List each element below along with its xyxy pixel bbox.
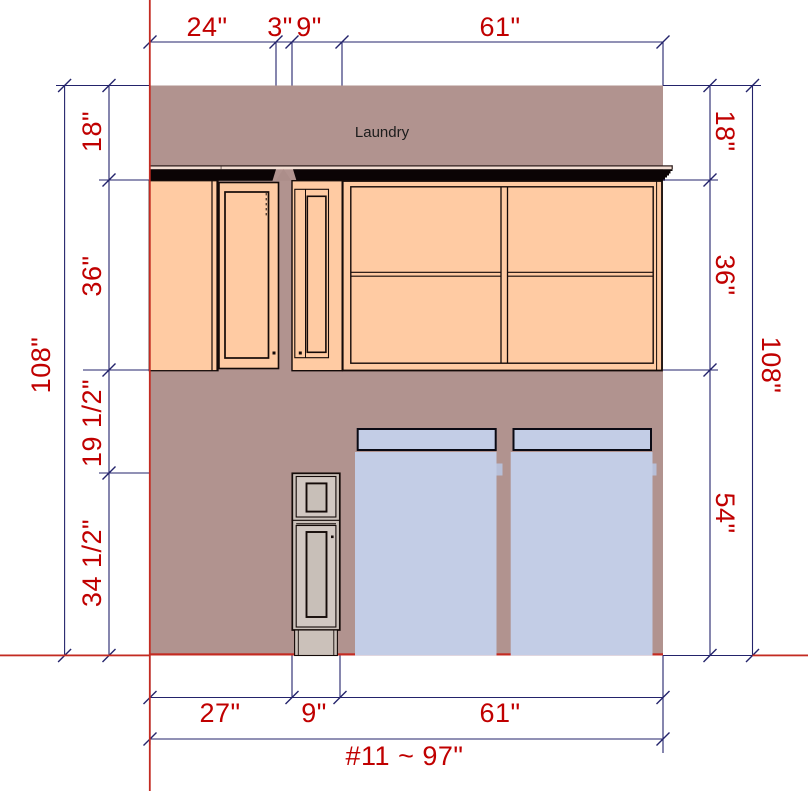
- svg-text:18": 18": [710, 110, 740, 151]
- svg-text:9": 9": [296, 12, 322, 42]
- svg-text:27": 27": [199, 698, 240, 728]
- svg-text:36": 36": [710, 254, 740, 295]
- svg-text:3": 3": [267, 12, 293, 42]
- svg-text:108": 108": [26, 337, 56, 394]
- svg-text:#11 ~ 97": #11 ~ 97": [346, 741, 464, 771]
- svg-text:54": 54": [710, 492, 740, 533]
- svg-text:Laundry: Laundry: [355, 124, 410, 141]
- svg-text:36": 36": [77, 255, 107, 296]
- svg-text:61": 61": [479, 698, 520, 728]
- svg-text:61": 61": [479, 12, 520, 42]
- svg-text:18": 18": [77, 111, 107, 152]
- svg-text:9": 9": [301, 698, 327, 728]
- svg-text:24": 24": [186, 12, 227, 42]
- svg-text:34 1/2": 34 1/2": [77, 519, 107, 607]
- svg-text:108": 108": [756, 337, 786, 394]
- svg-text:19 1/2": 19 1/2": [77, 379, 107, 467]
